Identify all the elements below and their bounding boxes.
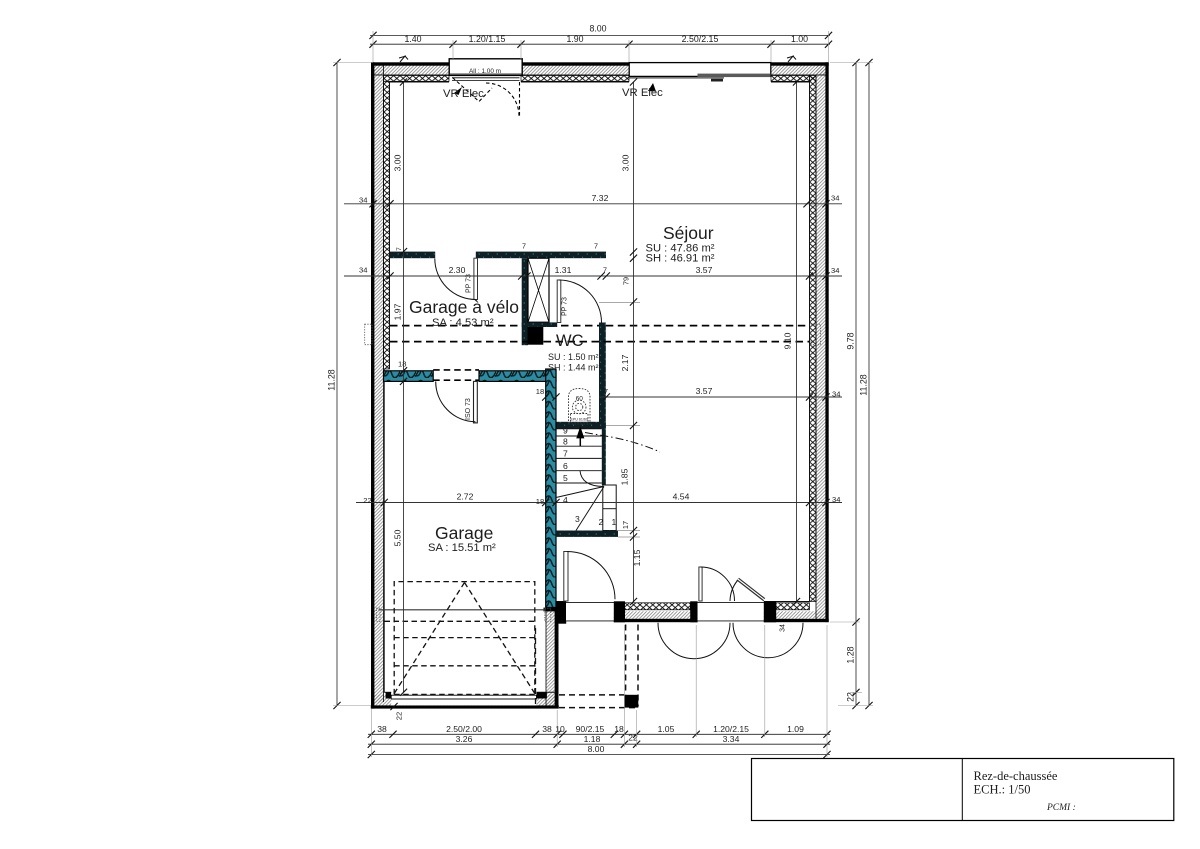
svg-text:3.57: 3.57 bbox=[696, 265, 713, 275]
svg-text:2.72: 2.72 bbox=[457, 492, 474, 502]
svg-text:1.05: 1.05 bbox=[658, 724, 675, 734]
svg-text:ISO 73: ISO 73 bbox=[465, 398, 472, 420]
svg-text:1: 1 bbox=[612, 517, 617, 527]
svg-text:18: 18 bbox=[614, 724, 624, 734]
svg-text:SA : 15.51 m²: SA : 15.51 m² bbox=[428, 542, 496, 554]
svg-text:8.00: 8.00 bbox=[588, 744, 605, 754]
svg-text:SH : 1.44 m²: SH : 1.44 m² bbox=[548, 363, 599, 373]
svg-text:1.00: 1.00 bbox=[791, 34, 808, 44]
svg-text:PCMI :: PCMI : bbox=[1046, 803, 1076, 813]
svg-text:VR Elec: VR Elec bbox=[622, 87, 663, 99]
svg-text:EPU 61/69: EPU 61/69 bbox=[571, 418, 588, 422]
svg-text:1.85: 1.85 bbox=[620, 468, 630, 485]
svg-text:5: 5 bbox=[563, 473, 568, 483]
svg-text:PP 73: PP 73 bbox=[562, 297, 569, 316]
svg-text:90/2.15: 90/2.15 bbox=[576, 724, 605, 734]
svg-text:All : 1.00 m: All : 1.00 m bbox=[469, 68, 501, 75]
svg-text:1.09: 1.09 bbox=[787, 724, 804, 734]
svg-text:7: 7 bbox=[396, 247, 403, 251]
svg-text:34: 34 bbox=[780, 624, 787, 632]
svg-text:Garage: Garage bbox=[435, 523, 493, 543]
svg-text:22: 22 bbox=[846, 692, 856, 702]
svg-text:3: 3 bbox=[575, 514, 580, 524]
svg-text:7: 7 bbox=[604, 387, 608, 396]
svg-text:2.30: 2.30 bbox=[449, 265, 466, 275]
svg-text:79: 79 bbox=[622, 277, 631, 285]
svg-text:8.00: 8.00 bbox=[589, 24, 606, 34]
svg-text:1.31: 1.31 bbox=[555, 265, 572, 275]
svg-text:5.50: 5.50 bbox=[393, 529, 403, 546]
svg-text:18: 18 bbox=[398, 360, 406, 369]
svg-text:1.20/2.15: 1.20/2.15 bbox=[713, 724, 749, 734]
svg-text:11.28: 11.28 bbox=[327, 369, 337, 390]
svg-text:1.97: 1.97 bbox=[393, 303, 403, 320]
svg-text:4: 4 bbox=[563, 495, 568, 505]
svg-text:9.10: 9.10 bbox=[783, 332, 793, 349]
svg-text:9.78: 9.78 bbox=[846, 332, 856, 349]
svg-text:11.28: 11.28 bbox=[859, 374, 869, 395]
svg-text:34: 34 bbox=[831, 194, 839, 203]
svg-text:34: 34 bbox=[832, 390, 840, 399]
svg-text:10: 10 bbox=[555, 724, 565, 734]
svg-text:38: 38 bbox=[377, 724, 387, 734]
svg-text:1.20/1.15: 1.20/1.15 bbox=[469, 34, 506, 44]
svg-text:17: 17 bbox=[621, 521, 630, 529]
svg-text:34: 34 bbox=[832, 495, 840, 504]
svg-text:60: 60 bbox=[576, 396, 584, 403]
svg-text:3.26: 3.26 bbox=[456, 734, 473, 744]
svg-text:7.32: 7.32 bbox=[592, 193, 609, 203]
svg-text:34: 34 bbox=[359, 196, 367, 205]
svg-text:3.00: 3.00 bbox=[621, 154, 631, 171]
svg-text:18: 18 bbox=[536, 387, 544, 396]
svg-text:7: 7 bbox=[603, 266, 607, 275]
svg-text:1.28: 1.28 bbox=[846, 646, 856, 663]
svg-text:3.00: 3.00 bbox=[393, 154, 403, 171]
svg-text:SU : 1.50 m²: SU : 1.50 m² bbox=[548, 352, 599, 362]
svg-text:Rez-de-chaussée: Rez-de-chaussée bbox=[974, 769, 1058, 783]
svg-text:SH : 46.91 m²: SH : 46.91 m² bbox=[646, 253, 715, 265]
svg-text:2.50/2.00: 2.50/2.00 bbox=[446, 724, 482, 734]
svg-text:7: 7 bbox=[594, 242, 598, 251]
svg-text:VR Elec: VR Elec bbox=[443, 88, 484, 100]
svg-text:7: 7 bbox=[563, 449, 568, 459]
svg-text:18: 18 bbox=[536, 497, 544, 506]
svg-text:1.40: 1.40 bbox=[404, 34, 421, 44]
svg-text:1.90: 1.90 bbox=[566, 34, 583, 44]
svg-text:38: 38 bbox=[542, 724, 552, 734]
svg-text:2: 2 bbox=[599, 517, 604, 527]
svg-text:PP 73: PP 73 bbox=[466, 274, 473, 293]
svg-text:8: 8 bbox=[563, 437, 568, 447]
svg-text:34: 34 bbox=[359, 266, 367, 275]
svg-text:34: 34 bbox=[831, 266, 839, 275]
svg-text:2.50/2.15: 2.50/2.15 bbox=[682, 34, 719, 44]
svg-text:22: 22 bbox=[395, 712, 404, 720]
svg-text:1.15: 1.15 bbox=[632, 549, 642, 566]
svg-text:4.54: 4.54 bbox=[673, 492, 690, 502]
svg-text:2.17: 2.17 bbox=[620, 354, 630, 371]
svg-text:Garage à vélo: Garage à vélo bbox=[409, 297, 519, 317]
svg-text:1.18: 1.18 bbox=[584, 734, 601, 744]
svg-text:3.34: 3.34 bbox=[723, 734, 740, 744]
svg-text:6: 6 bbox=[563, 461, 568, 471]
svg-text:SA : 4.53 m²: SA : 4.53 m² bbox=[432, 317, 494, 329]
svg-text:3.57: 3.57 bbox=[696, 386, 713, 396]
svg-text:ECH.: 1/50: ECH.: 1/50 bbox=[974, 783, 1031, 797]
svg-text:7: 7 bbox=[522, 242, 526, 251]
svg-text:9: 9 bbox=[563, 426, 568, 436]
svg-text:Séjour: Séjour bbox=[663, 223, 714, 243]
svg-text:22: 22 bbox=[363, 496, 371, 505]
svg-text:WC: WC bbox=[556, 332, 584, 350]
